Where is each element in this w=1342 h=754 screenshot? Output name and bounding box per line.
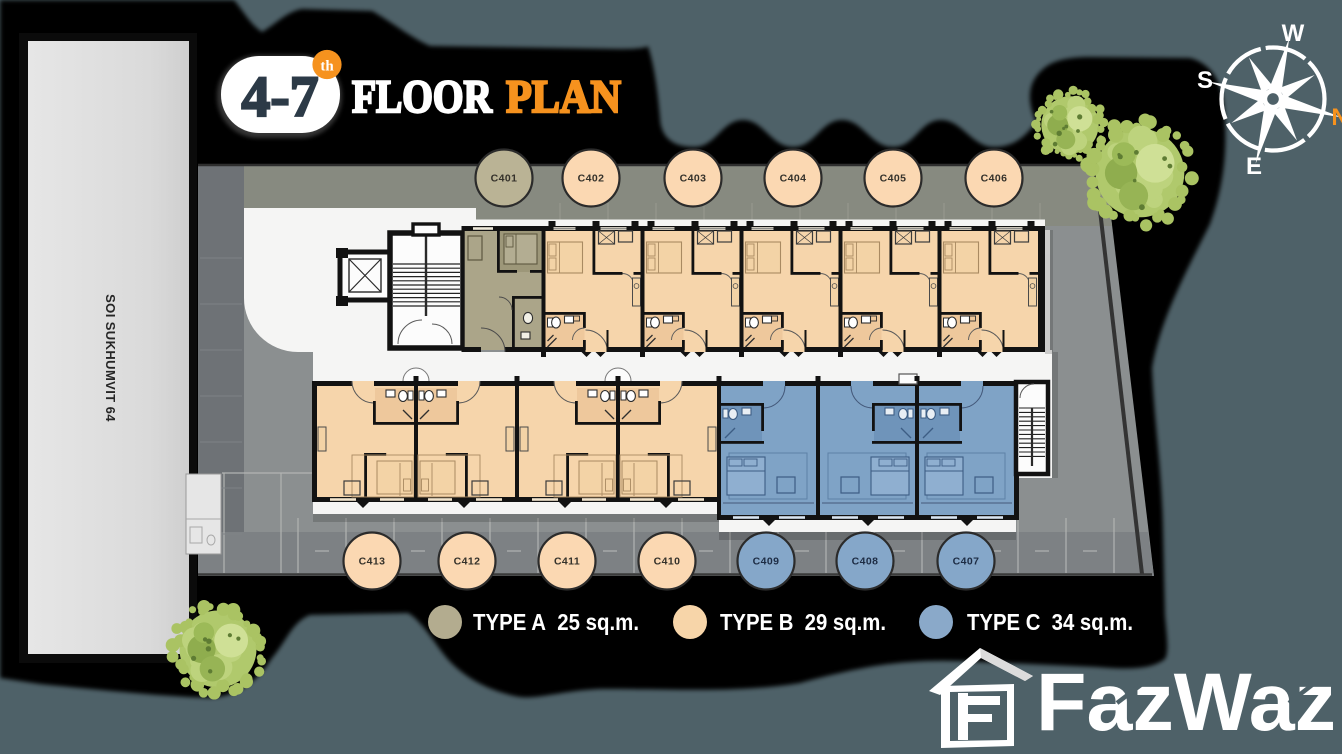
svg-text:C413: C413 (359, 556, 386, 568)
svg-text:E: E (1246, 153, 1262, 180)
svg-text:N: N (1331, 104, 1342, 131)
svg-text:PLAN: PLAN (506, 71, 621, 123)
svg-text:C407: C407 (953, 556, 980, 568)
svg-text:FLOOR: FLOOR (352, 71, 493, 123)
svg-text:C404: C404 (780, 173, 807, 185)
svg-text:C411: C411 (554, 556, 580, 568)
svg-text:C410: C410 (654, 556, 681, 568)
svg-text:W: W (1282, 20, 1305, 47)
svg-text:C406: C406 (981, 173, 1008, 185)
svg-text:C405: C405 (880, 173, 907, 185)
svg-text:C408: C408 (852, 556, 879, 568)
svg-text:TYPE A 25 sq.m.: TYPE A 25 sq.m. (473, 609, 639, 635)
svg-text:SOI SUKHUMVIT 64: SOI SUKHUMVIT 64 (103, 294, 118, 422)
svg-text:C403: C403 (680, 173, 707, 185)
svg-text:4-7: 4-7 (241, 64, 318, 129)
svg-text:th: th (320, 59, 334, 75)
svg-text:C412: C412 (454, 556, 481, 568)
svg-text:TYPE C 34 sq.m.: TYPE C 34 sq.m. (967, 609, 1133, 635)
svg-text:S: S (1197, 67, 1213, 94)
svg-text:TYPE B 29 sq.m.: TYPE B 29 sq.m. (720, 609, 886, 635)
svg-text:C401: C401 (491, 173, 518, 185)
svg-text:C402: C402 (578, 173, 605, 185)
svg-text:C409: C409 (753, 556, 780, 568)
